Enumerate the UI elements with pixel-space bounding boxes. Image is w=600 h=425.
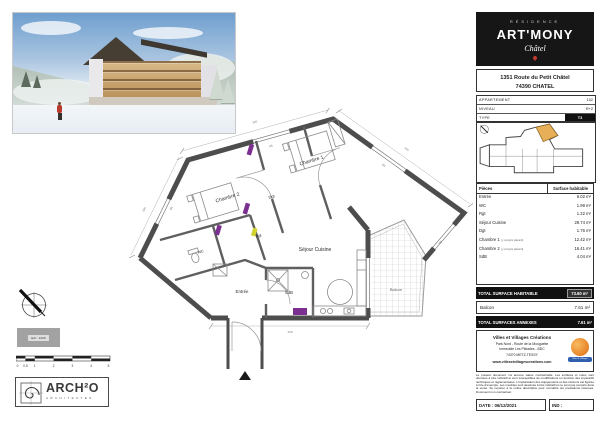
- surface-table: Pièces Surface habitable Entrée6.02 m² W…: [476, 183, 594, 285]
- table-row: Séjour Cuisine29.74 m²: [477, 220, 593, 229]
- table-row: Entrée6.02 m²: [477, 194, 593, 203]
- table-row: WC1.99 m²: [477, 203, 593, 212]
- col-pieces: Pièces: [477, 184, 548, 193]
- residence-name: ART'MONY: [476, 27, 594, 42]
- total-label: TOTAL SURFACE HABITABLE: [478, 291, 538, 296]
- info-label: APPARTEMENT: [479, 98, 510, 102]
- person-red-jacket: [57, 105, 62, 113]
- total-habitable-band: TOTAL SURFACE HABITABLE 73.60 m²: [476, 287, 594, 299]
- room-label-sdb: SdB: [285, 290, 293, 295]
- residence-place: Châtel: [476, 44, 594, 53]
- table-row: Rgt1.22 m²: [477, 211, 593, 220]
- svg-text:4: 4: [90, 364, 92, 368]
- balcony-area: [368, 220, 426, 316]
- cloud: [21, 21, 81, 35]
- window-tag: VR: [268, 144, 273, 149]
- address-line1: 1351 Route du Petit Châtel: [477, 74, 593, 83]
- svg-text:3: 3: [72, 364, 74, 368]
- table-row: Dgt1.76 m²: [477, 228, 593, 237]
- address-line2: 74390 CHATEL: [477, 83, 593, 92]
- door-markers: [215, 144, 307, 315]
- info-label: TYPE: [479, 116, 490, 120]
- svg-text:2: 2: [53, 364, 55, 368]
- spiral-icon: [19, 381, 43, 405]
- promoter-address2: Immeuble Les Pléiades - BDC: [479, 347, 565, 351]
- furniture: [187, 119, 366, 316]
- entrance-arrow-icon: [239, 371, 251, 380]
- balcon-row: Balcon 7.61 m²: [476, 301, 594, 314]
- dimension-label: 290: [141, 206, 147, 213]
- annex-value: 7.61 m²: [578, 320, 592, 325]
- table-row: NIVEAU R+2: [477, 104, 595, 113]
- date-value: 06/12/2021: [495, 403, 517, 408]
- architect-subtitle: ARCHITECTES: [46, 396, 99, 400]
- annex-label: TOTAL SURFACES ANNEXES: [478, 320, 537, 325]
- date-label: DATE :: [479, 403, 493, 408]
- date-box: DATE : 06/12/2021: [476, 399, 546, 411]
- dimension-label: 398: [252, 119, 258, 124]
- floor-outline: [480, 124, 583, 173]
- balcon-value: 7.61 m²: [574, 305, 590, 310]
- col-surface: Surface habitable: [548, 186, 593, 191]
- table-row: Chambre 2(y compris placard)16.41 m²: [477, 246, 593, 255]
- residence-label: RÉSIDENCE: [476, 12, 594, 24]
- room-label-dgt: Dgt: [268, 193, 276, 200]
- info-value: 102: [587, 98, 593, 102]
- balcon-label: Balcon: [480, 305, 494, 310]
- cloud: [133, 27, 203, 39]
- promoter-name: Villes et Villages Créations: [479, 335, 565, 340]
- ind-label: IND :: [552, 403, 562, 408]
- promoter-box: Villes et Villages Créations Park Nord -…: [476, 330, 594, 372]
- table-row: APPARTEMENT 102: [477, 96, 595, 104]
- dimension-label: 445: [403, 146, 410, 152]
- scale-note-label: Ech : 1/100: [28, 335, 48, 341]
- person-legs: [58, 113, 62, 120]
- architect-logo: ARCH²O ARCHITECTES: [15, 377, 109, 407]
- room-label-chambre1: Chambre 1: [299, 154, 325, 167]
- key-plan: [476, 121, 596, 183]
- total-value: 73.60 m²: [567, 289, 592, 298]
- room-label-rgt: Rgt: [255, 233, 263, 239]
- svg-text:5: 5: [108, 364, 110, 368]
- window-tag: VR: [381, 162, 386, 168]
- room-label-wc: WC: [197, 249, 204, 255]
- promoter-website: www.villesetvillagescreations.com: [479, 360, 565, 364]
- info-label: NIVEAU: [479, 107, 495, 111]
- key-plan-drawing: [477, 122, 593, 180]
- room-label-balcon: Balcon: [390, 287, 402, 292]
- entry-corridor-walls: [228, 318, 262, 369]
- building-ground-floor: [89, 97, 217, 105]
- table-row: Chambre 1(y compris placard)12.42 m²: [477, 237, 593, 246]
- room-label-entree: Entrée: [236, 289, 249, 294]
- dimension-label: 368: [287, 330, 292, 334]
- room-label-sejour: Séjour Cuisine: [299, 247, 332, 253]
- svg-text:0.5: 0.5: [23, 364, 28, 368]
- svg-text:1: 1: [34, 364, 36, 368]
- scale-bar: 0 0.5 1 2 3 4 5: [16, 354, 114, 370]
- legal-text: Le présent document n'a aucune valeur co…: [476, 374, 594, 397]
- apartment-info-table: APPARTEMENT 102 NIVEAU R+2 TYPE T3: [476, 95, 596, 123]
- scale-ticks: 0 0.5 1 2 3 4 5: [17, 364, 110, 368]
- total-annexes-band: TOTAL SURFACES ANNEXES 7.61 m²: [476, 316, 594, 328]
- address-box: 1351 Route du Petit Châtel 74390 CHATEL: [476, 69, 594, 92]
- location-pin-icon: [532, 55, 538, 61]
- promoter-address3: 74370 METZ-TESSY: [479, 353, 565, 357]
- info-value: R+2: [586, 107, 593, 111]
- ind-box: IND :: [549, 399, 594, 411]
- promoter-logo-icon: [571, 338, 589, 356]
- building-end-wall: [89, 59, 103, 101]
- scale-note: Ech : 1/100: [17, 328, 60, 347]
- promoter-ribbon: Villes & Villages: [568, 357, 592, 362]
- table-header: Pièces Surface habitable: [477, 184, 593, 194]
- north-compass: [14, 286, 52, 324]
- promoter-address1: Park Nord - Route de la Mouguette: [479, 342, 565, 346]
- svg-text:0: 0: [17, 364, 19, 368]
- balcony-bands: [89, 61, 201, 101]
- plan-sheet: 398 445 290 368: [0, 0, 600, 425]
- table-row: SdB4.04 m²: [477, 254, 593, 263]
- window-tag: VR: [168, 206, 173, 211]
- architect-name: ARCH²O: [46, 382, 99, 395]
- residence-logo: RÉSIDENCE ART'MONY Châtel: [476, 12, 594, 66]
- floor-plan: 398 445 290 368: [128, 108, 473, 408]
